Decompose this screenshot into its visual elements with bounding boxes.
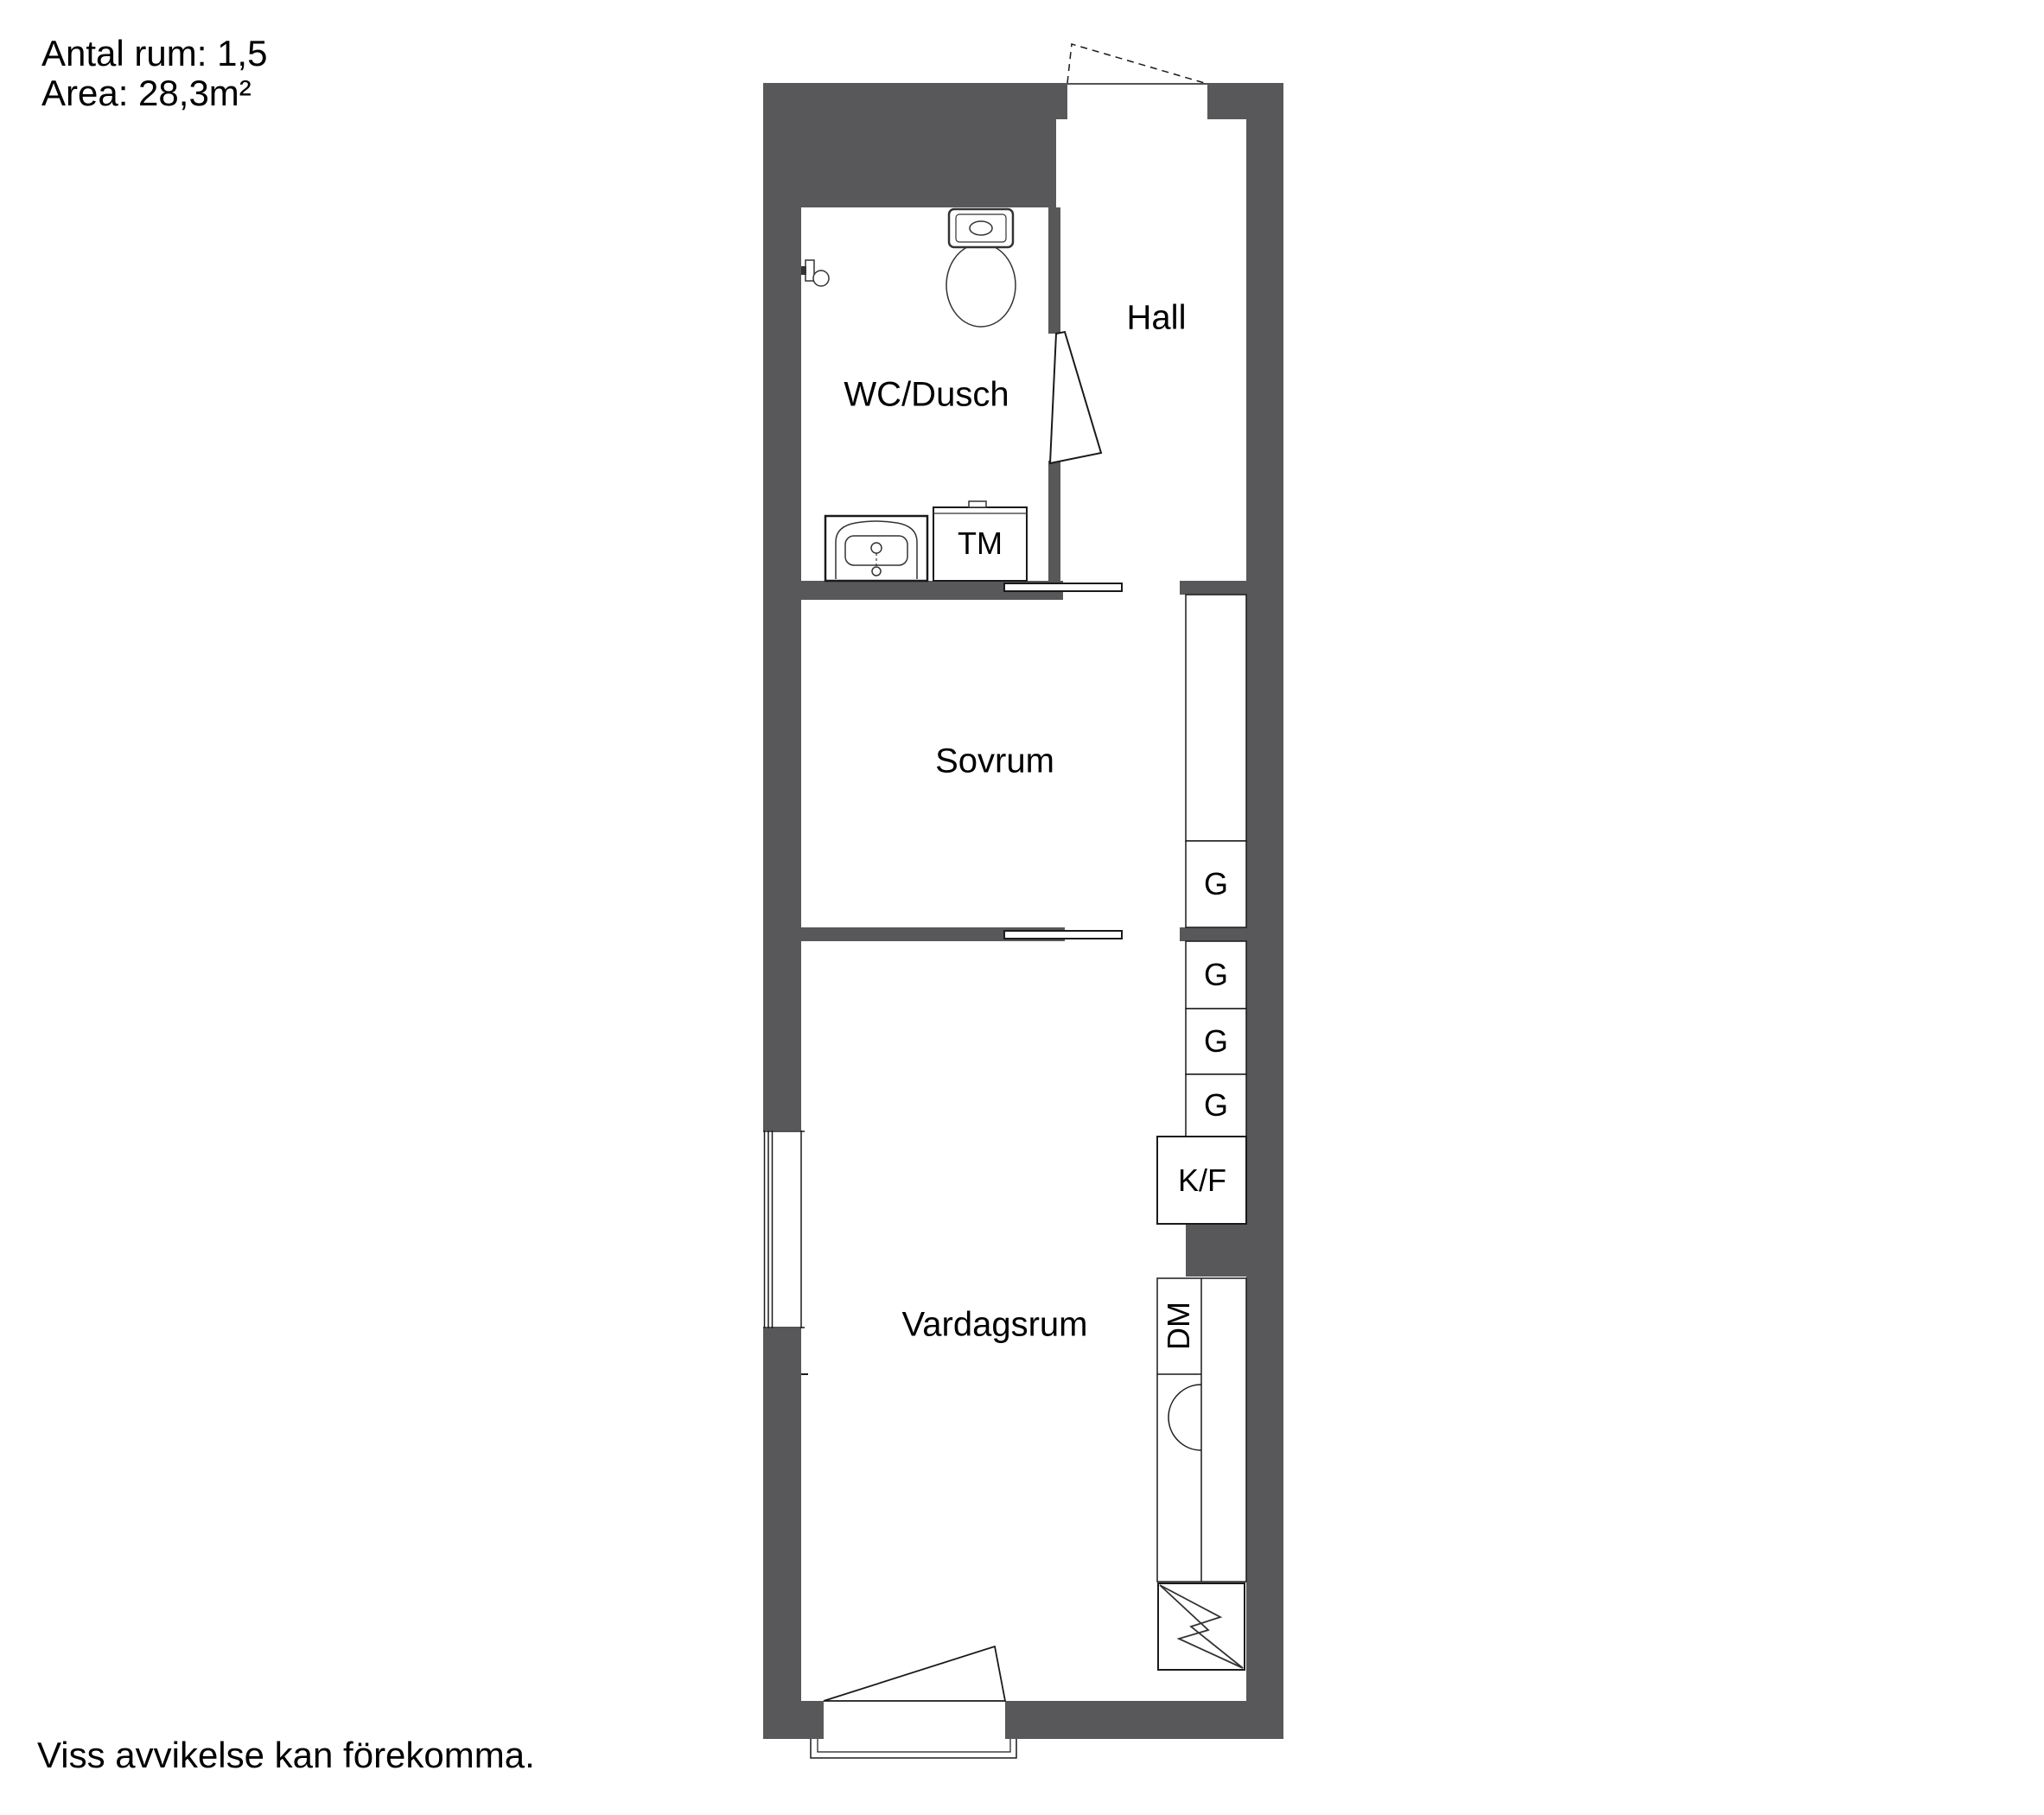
info-area: Area: 28,3m² [41, 73, 252, 114]
info-rooms-count: Antal rum: 1,5 [41, 33, 267, 74]
kitchen-units [1157, 1137, 1246, 1670]
wall-sovrum-bottom-right [1180, 927, 1247, 941]
wall-top-strip [1056, 83, 1067, 119]
washing-machine-knob [969, 501, 986, 507]
balcony-threshold-inner [818, 1739, 1010, 1752]
room-label-hall: Hall [1127, 299, 1187, 338]
balcony-door [811, 1646, 1016, 1758]
toilet-button [970, 221, 992, 235]
disclaimer-text: Viss avvikelse kan förekomma. [37, 1735, 535, 1776]
wc-door-leaf [1050, 332, 1101, 463]
wall-top-block [763, 83, 1056, 207]
floorplan-drawing [0, 0, 2044, 1815]
appliance-label-tm: TM [958, 525, 1003, 562]
shower-wall-tick [801, 266, 806, 275]
sink-tap [871, 543, 882, 553]
room-label-sovrum: Sovrum [935, 742, 1054, 781]
wall-wc-hall-lower [1048, 461, 1060, 581]
wardrobe-label-2: G [1204, 957, 1228, 993]
wall-wc-hall-upper [1048, 207, 1060, 334]
wall-left-upper [763, 83, 801, 1130]
wall-right [1246, 119, 1283, 1739]
wall-top-right-corner [1207, 83, 1283, 119]
toilet-bowl [946, 244, 1016, 327]
bathroom-sink-icon [825, 516, 927, 581]
shower-knob [813, 271, 829, 286]
room-label-vardagsrum: Vardagsrum [902, 1306, 1088, 1345]
wall-closet-top [1180, 581, 1247, 595]
sink-drain [872, 567, 881, 576]
wall-bottom-right [1005, 1701, 1283, 1739]
appliance-label-kf: K/F [1178, 1162, 1226, 1199]
floorplan-canvas: Antal rum: 1,5 Area: 28,3m² Hall WC/Dusc… [0, 0, 2044, 1815]
wall-kitchen-block [1186, 1224, 1246, 1277]
entry-door [1067, 44, 1207, 84]
wardrobe-label-3: G [1204, 1023, 1228, 1060]
balcony-door-leaf [824, 1646, 1005, 1701]
entry-door-swing [1067, 44, 1207, 84]
toilet-icon [946, 209, 1016, 327]
balcony-threshold-outer [811, 1739, 1016, 1758]
sliding-door-sovrum-vardagsrum [1004, 931, 1122, 939]
wall-bottom-left [763, 1701, 824, 1739]
sliding-door-sovrum-hall [1004, 583, 1122, 591]
closet-tall-box [1186, 595, 1246, 841]
room-label-wc-dusch: WC/Dusch [844, 376, 1009, 415]
wardrobe-label-1: G [1204, 866, 1228, 902]
wall-left-lower [763, 1328, 801, 1739]
shower-mixer-icon [801, 260, 829, 286]
wardrobe-label-4: G [1204, 1087, 1228, 1124]
appliance-label-dm: DM [1161, 1302, 1197, 1350]
